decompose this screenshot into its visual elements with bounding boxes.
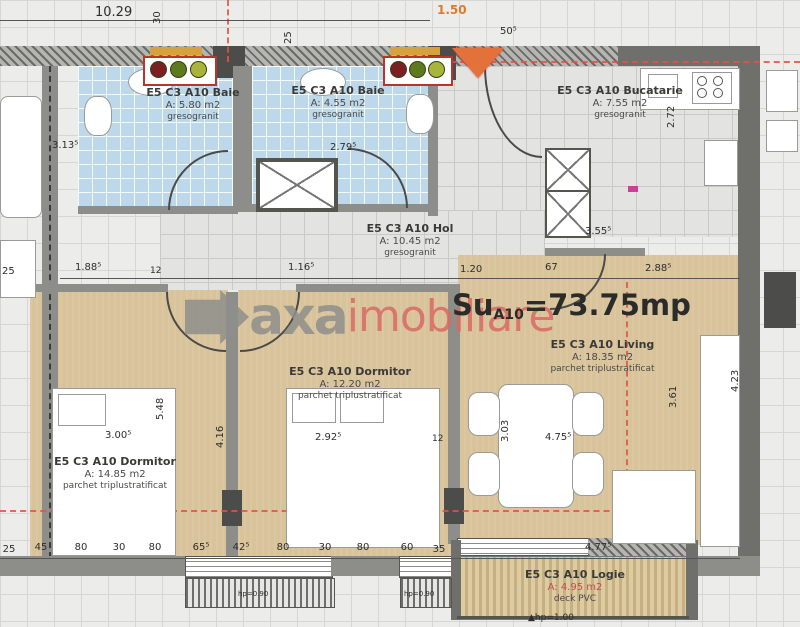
watermark-axa: axa bbox=[249, 291, 347, 343]
total-value: =73.75mp bbox=[524, 288, 691, 322]
exterior-wall-bottom bbox=[690, 556, 760, 576]
bathtub bbox=[0, 96, 42, 218]
dim-dormitor2-height: 4.16 bbox=[215, 426, 226, 448]
wall-segment bbox=[30, 284, 168, 292]
dim-288: 2.88⁵ bbox=[645, 263, 671, 274]
room-name: E5 C3 A10 Dormitor bbox=[35, 455, 195, 469]
total-su: Su bbox=[452, 288, 494, 322]
dim-living-width: 4.75⁵ bbox=[545, 432, 571, 443]
dim-sofa-length: 4.23 bbox=[730, 370, 741, 392]
dim-window-parapet: hp=0.90 bbox=[404, 590, 434, 598]
room-label-bucatarie: E5 C3 A10 Bucatarie A: 7.55 m2 gresogran… bbox=[520, 84, 720, 122]
window bbox=[399, 556, 459, 578]
room-label-living: E5 C3 A10 Living A: 18.35 m2 parchet tri… bbox=[510, 338, 695, 376]
planter-label bbox=[150, 47, 202, 55]
dim-116: 1.16⁵ bbox=[288, 262, 314, 273]
room-name: E5 C3 A10 Dormitor bbox=[260, 365, 440, 379]
dim-chain-6: 42⁵ bbox=[226, 542, 256, 553]
room-label-baie-1: E5 C3 A10 Baie A: 5.80 m2 gresogranit bbox=[118, 86, 268, 124]
room-name: E5 C3 A10 Living bbox=[510, 338, 695, 352]
loggia-wall bbox=[686, 540, 698, 620]
dim-chain-5: 65⁵ bbox=[186, 542, 216, 553]
room-finish: deck PVC bbox=[490, 594, 660, 605]
dim-logie-width: 4.77⁵ bbox=[585, 542, 611, 553]
dim-chain-7: 80 bbox=[268, 542, 298, 553]
room-name: E5 C3 A10 Bucatarie bbox=[520, 84, 720, 98]
wall-pier bbox=[222, 490, 242, 526]
room-area: A: 5.80 m2 bbox=[118, 100, 268, 113]
window bbox=[185, 556, 333, 578]
dim-chain-0: 25 bbox=[0, 544, 24, 555]
dim-baie1-width: 3.13⁵ bbox=[52, 140, 78, 151]
dim-dormitor1-height: 5.48 bbox=[155, 398, 166, 420]
room-finish: parchet triplustratificat bbox=[35, 481, 195, 492]
room-finish: gresogranit bbox=[330, 248, 490, 259]
dim-chain-9: 80 bbox=[348, 542, 378, 553]
room-name: E5 C3 A10 Baie bbox=[263, 84, 413, 98]
room-area: A: 4.95 m2 bbox=[490, 582, 660, 595]
plant-icon bbox=[428, 61, 445, 78]
room-label-logie: E5 C3 A10 Logie A: 4.95 m2 deck PVC bbox=[490, 568, 660, 606]
dining-table bbox=[498, 384, 574, 508]
room-finish: gresogranit bbox=[520, 110, 720, 121]
room-area: A: 4.55 m2 bbox=[263, 98, 413, 111]
wall-segment bbox=[428, 66, 438, 216]
fridge bbox=[704, 140, 738, 186]
room-area: A: 12.20 m2 bbox=[260, 379, 440, 392]
dim-chain-1: 45 bbox=[26, 542, 56, 553]
chair bbox=[468, 392, 500, 436]
room-name: E5 C3 A10 Hol bbox=[330, 222, 490, 236]
dim-chain-10: 60 bbox=[392, 542, 422, 553]
wall-pier bbox=[444, 488, 464, 524]
room-name: E5 C3 A10 Baie bbox=[118, 86, 268, 100]
room-label-hol: E5 C3 A10 Hol A: 10.45 m2 gresogranit bbox=[330, 222, 490, 260]
dim-chain-3: 30 bbox=[104, 542, 134, 553]
dim-12b: 12 bbox=[432, 434, 443, 444]
exterior-wall-bottom bbox=[331, 556, 399, 576]
plant-icon bbox=[150, 61, 167, 78]
dim-living-303: 3.03 bbox=[500, 420, 511, 442]
plant-icon bbox=[390, 61, 407, 78]
total-area-label: SuA10=73.75mp bbox=[452, 288, 691, 323]
room-area: A: 10.45 m2 bbox=[330, 236, 490, 249]
room-label-dormitor-1: E5 C3 A10 Dormitor A: 14.85 m2 parchet t… bbox=[35, 455, 195, 493]
dim-window-parapet: hp=0.90 bbox=[238, 590, 268, 598]
dim-dormitor2-width: 2.92⁵ bbox=[315, 432, 341, 443]
dim-chain-8: 30 bbox=[310, 542, 340, 553]
plant-icon bbox=[190, 61, 207, 78]
room-label-dormitor-2: E5 C3 A10 Dormitor A: 12.20 m2 parchet t… bbox=[260, 365, 440, 403]
dim-25: 25 bbox=[283, 31, 294, 44]
floor-plan: 10.29 1.50 50⁵ 30 25 3.13⁵ 2.79⁵ 3.55⁵ 2… bbox=[0, 0, 800, 627]
dim-chain-11: 35 bbox=[424, 544, 454, 555]
exterior-wall-right bbox=[738, 46, 760, 576]
axis-line bbox=[227, 0, 229, 62]
dim-25-left: 25 bbox=[2, 266, 15, 277]
dimension-line bbox=[0, 558, 740, 559]
dim-top-width: 10.29 bbox=[95, 5, 132, 20]
dim-188: 1.88⁵ bbox=[75, 262, 101, 273]
plant-icon bbox=[409, 61, 426, 78]
sofa bbox=[700, 335, 740, 547]
plant-icon bbox=[170, 61, 187, 78]
fixture bbox=[766, 120, 798, 152]
dim-67: 67 bbox=[545, 262, 558, 273]
room-area: A: 14.85 m2 bbox=[35, 469, 195, 482]
dim-120: 1.20 bbox=[460, 264, 482, 275]
chair bbox=[468, 452, 500, 496]
exterior-wall-bottom bbox=[0, 556, 185, 576]
wall-segment bbox=[618, 46, 740, 66]
axa-logo-icon bbox=[185, 290, 249, 344]
pillow bbox=[58, 394, 106, 426]
room-finish: parchet triplustratificat bbox=[510, 364, 695, 375]
room-finish: gresogranit bbox=[118, 112, 268, 123]
dim-50: 50⁵ bbox=[500, 26, 517, 37]
room-area: A: 18.35 m2 bbox=[510, 352, 695, 365]
dim-living-height: 3.61 bbox=[668, 386, 679, 408]
dimension-line bbox=[0, 20, 430, 21]
total-sub: A10 bbox=[494, 307, 524, 323]
room-area: A: 7.55 m2 bbox=[520, 98, 720, 111]
dimension-line bbox=[60, 278, 740, 279]
loggia-sliding-door bbox=[457, 538, 591, 556]
room-finish: parchet triplustratificat bbox=[260, 391, 440, 402]
dim-logie-parapet: ▲hp=1.00 bbox=[528, 613, 574, 623]
room-finish: gresogranit bbox=[263, 110, 413, 121]
dim-30: 30 bbox=[152, 11, 163, 24]
dim-bucatarie-width: 3.55⁵ bbox=[585, 226, 611, 237]
dim-chain-2: 80 bbox=[66, 542, 96, 553]
dim-12: 12 bbox=[150, 266, 161, 276]
dim-150: 1.50 bbox=[437, 3, 467, 17]
level-marker-icon bbox=[452, 48, 504, 78]
dim-baie2-width: 2.79⁵ bbox=[330, 142, 356, 153]
radiator bbox=[764, 272, 796, 328]
fixture bbox=[766, 70, 798, 112]
chair bbox=[572, 452, 604, 496]
room-label-baie-2: E5 C3 A10 Baie A: 4.55 m2 gresogranit bbox=[263, 84, 413, 122]
dim-chain-4: 80 bbox=[140, 542, 170, 553]
cabinet bbox=[612, 470, 696, 544]
planter-label bbox=[390, 47, 440, 55]
outlet-symbol bbox=[628, 186, 638, 192]
toilet bbox=[84, 96, 112, 136]
ventilation-shaft bbox=[256, 158, 338, 212]
ventilation-shaft bbox=[545, 148, 591, 192]
chair bbox=[572, 392, 604, 436]
dim-dormitor1-width: 3.00⁵ bbox=[105, 430, 131, 441]
room-name: E5 C3 A10 Logie bbox=[490, 568, 660, 582]
